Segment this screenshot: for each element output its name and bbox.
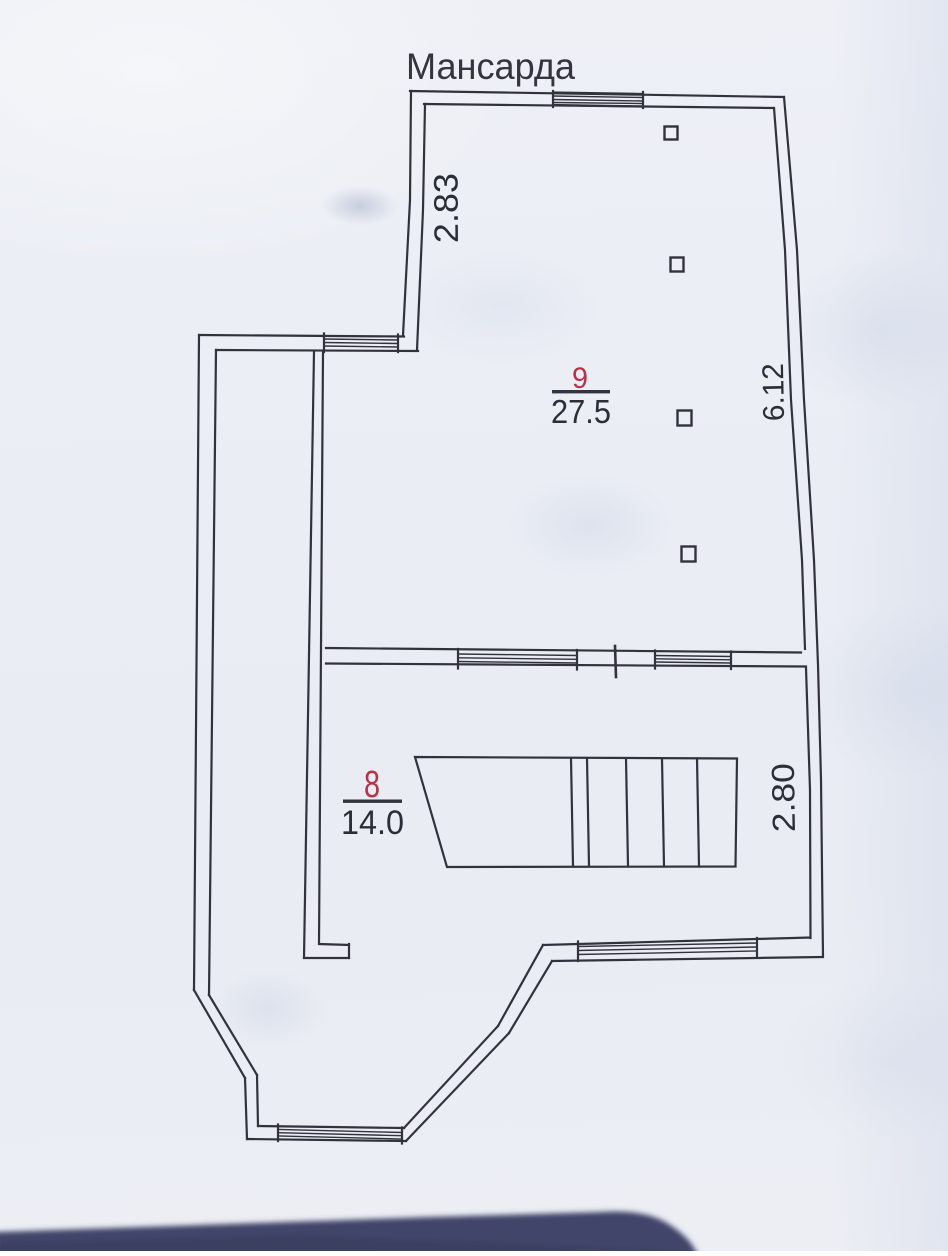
svg-text:14.0: 14.0 <box>341 804 404 842</box>
svg-text:27.5: 27.5 <box>551 393 611 430</box>
svg-text:6.12: 6.12 <box>757 363 791 422</box>
svg-text:2.80: 2.80 <box>765 763 802 833</box>
svg-text:2.83: 2.83 <box>427 173 466 243</box>
svg-text:Мансарда: Мансарда <box>406 46 575 87</box>
